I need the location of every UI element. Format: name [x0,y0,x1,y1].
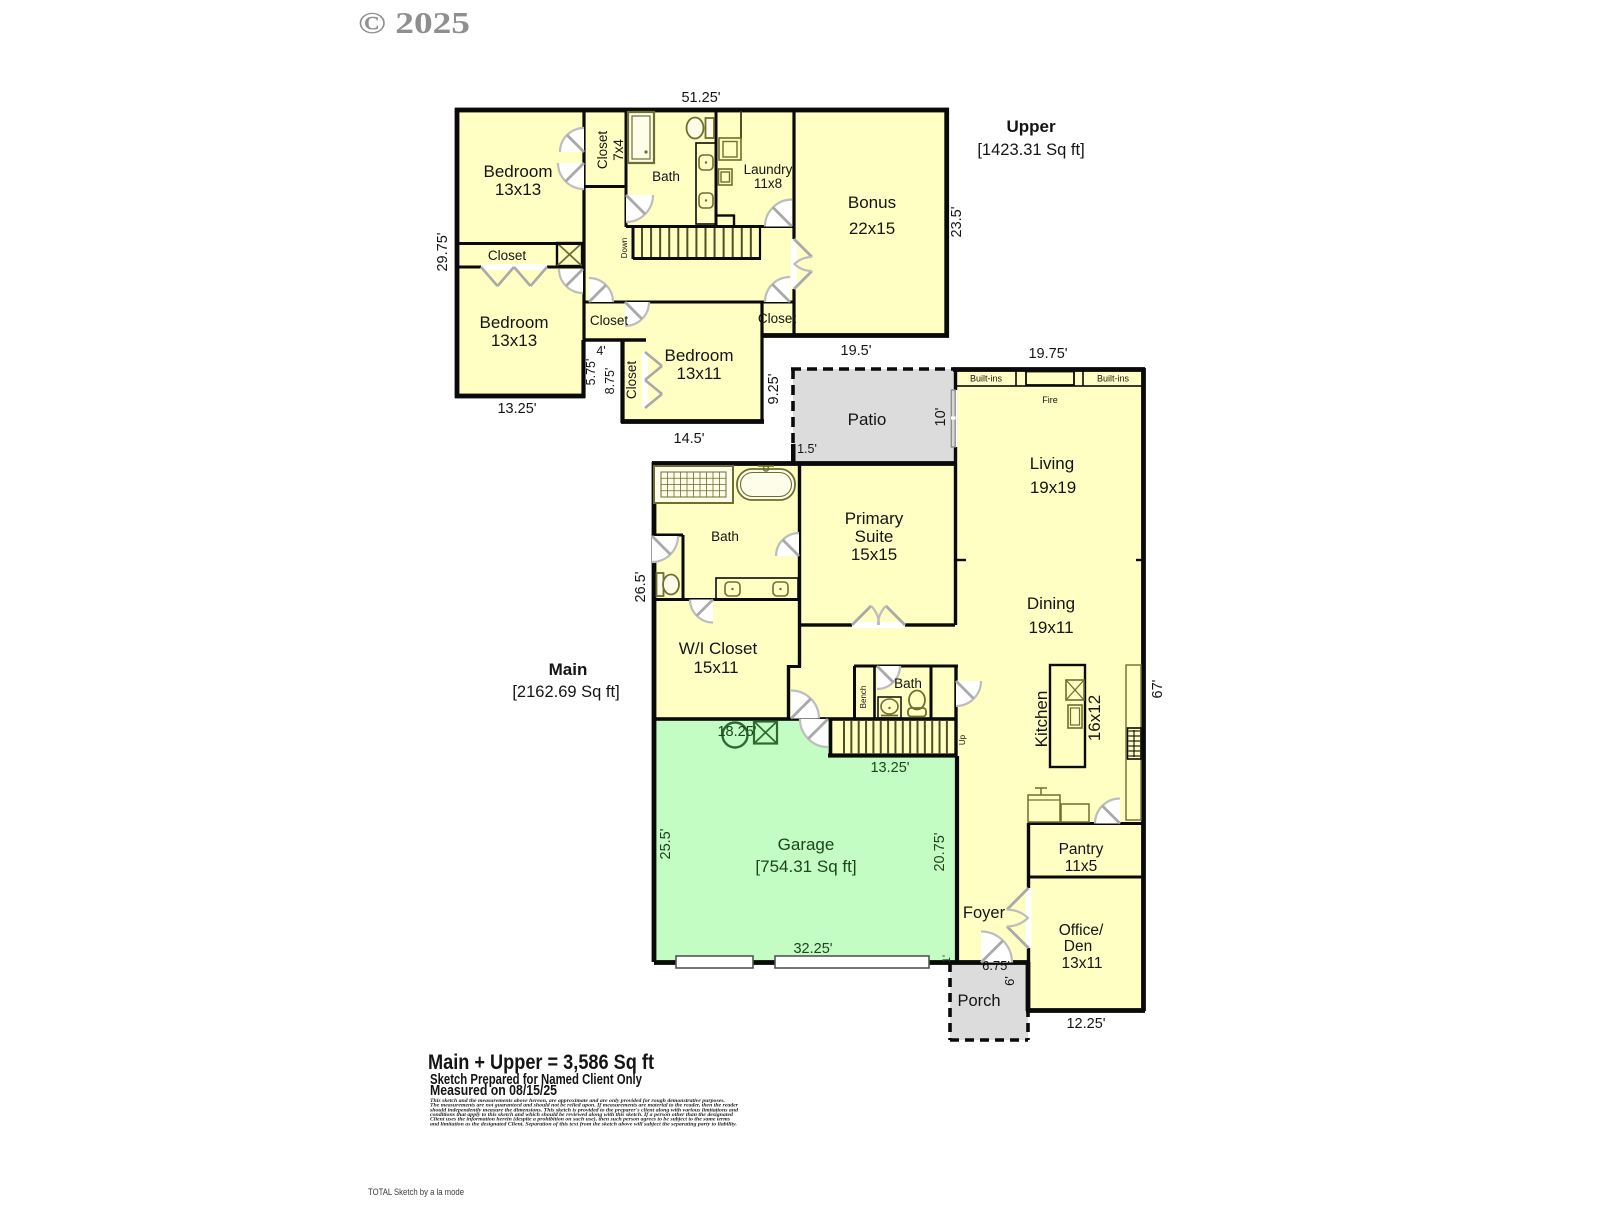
svg-text:1': 1' [941,955,953,963]
svg-text:13x13: 13x13 [495,180,541,199]
svg-text:13.25': 13.25' [497,401,536,417]
svg-text:[754.31 Sq ft]: [754.31 Sq ft] [755,857,856,876]
svg-text:Built-ins: Built-ins [1097,374,1130,384]
svg-text:Primary: Primary [845,509,904,528]
svg-text:Laundry: Laundry [744,162,793,177]
svg-text:Closet: Closet [595,131,610,170]
svg-text:13x11: 13x11 [676,364,721,383]
svg-text:67': 67' [1150,679,1166,698]
svg-text:Main: Main [549,660,588,679]
svg-text:16x12: 16x12 [1085,695,1104,741]
svg-text:Bath: Bath [711,529,739,544]
svg-text:11x5: 11x5 [1065,858,1097,875]
svg-text:Closet: Closet [624,361,639,400]
svg-text:Bedroom: Bedroom [480,313,549,332]
svg-text:22x15: 22x15 [849,219,895,238]
svg-text:Kitchen: Kitchen [1032,691,1051,748]
svg-text:TOTAL Sketch by a la mode: TOTAL Sketch by a la mode [368,1187,464,1197]
svg-text:Living: Living [1030,454,1074,473]
svg-text:Bath: Bath [652,169,680,184]
svg-text:Dining: Dining [1027,594,1075,613]
svg-text:Office/: Office/ [1059,922,1104,939]
svg-text:© 2025: © 2025 [358,5,470,40]
svg-text:Measured on 08/15/25: Measured on 08/15/25 [430,1083,557,1099]
svg-text:12.25': 12.25' [1066,1016,1105,1032]
svg-text:14.5': 14.5' [674,431,705,447]
svg-text:19x19: 19x19 [1030,478,1076,497]
svg-text:Porch: Porch [957,992,1000,1010]
svg-text:[2162.69 Sq ft]: [2162.69 Sq ft] [512,683,619,701]
svg-text:51.25': 51.25' [681,90,720,106]
svg-text:19.5': 19.5' [841,343,872,359]
svg-text:11x8: 11x8 [754,176,782,191]
svg-text:Closet: Closet [758,311,797,326]
svg-text:10': 10' [933,407,949,426]
svg-text:25.5': 25.5' [658,828,674,859]
svg-text:Bedroom: Bedroom [484,162,553,181]
svg-text:Bedroom: Bedroom [665,346,734,365]
svg-text:Bath: Bath [894,676,922,691]
svg-text:and limitation as the designat: and limitation as the designated Client.… [430,1122,737,1127]
svg-text:20.75': 20.75' [932,832,948,871]
svg-text:9.25': 9.25' [766,373,782,404]
svg-text:Upper: Upper [1006,117,1056,136]
svg-text:Main + Upper = 3,586 Sq ft: Main + Upper = 3,586 Sq ft [428,1050,654,1074]
svg-text:Fire: Fire [1042,395,1058,405]
svg-text:Bonus: Bonus [848,193,896,212]
svg-text:Up: Up [958,734,967,745]
svg-text:18.25': 18.25' [717,724,756,740]
svg-text:32.25': 32.25' [793,941,832,957]
svg-text:Foyer: Foyer [963,904,1006,922]
svg-text:19.75': 19.75' [1028,346,1067,362]
svg-text:13x11: 13x11 [1061,955,1102,972]
svg-text:[1423.31 Sq ft]: [1423.31 Sq ft] [977,141,1084,159]
svg-text:29.75': 29.75' [435,232,451,271]
svg-text:W/I Closet: W/I Closet [679,639,758,658]
svg-text:15x11: 15x11 [693,658,738,677]
svg-text:Den: Den [1064,938,1092,955]
svg-text:Closet: Closet [590,313,629,328]
svg-text:Down: Down [620,238,629,258]
svg-text:1.5': 1.5' [797,442,817,456]
svg-text:Built-ins: Built-ins [970,374,1003,384]
svg-text:Bench: Bench [859,686,868,709]
svg-text:13.25': 13.25' [870,760,909,776]
svg-text:Patio: Patio [848,410,887,429]
svg-text:8.75': 8.75' [603,368,617,395]
svg-text:23.5': 23.5' [949,206,965,237]
svg-text:6.75': 6.75' [982,958,1010,973]
svg-text:6': 6' [1002,976,1017,986]
svg-text:Garage: Garage [778,835,835,854]
svg-text:5.75': 5.75' [584,359,598,386]
svg-text:15x15: 15x15 [851,545,897,564]
svg-text:4': 4' [596,344,605,358]
svg-text:7x4: 7x4 [611,139,626,161]
svg-text:Suite: Suite [855,527,894,546]
svg-text:26.5': 26.5' [633,571,649,602]
svg-text:Closet: Closet [488,248,527,263]
svg-text:13x13: 13x13 [491,331,537,350]
svg-text:Pantry: Pantry [1059,841,1104,858]
svg-text:19x11: 19x11 [1028,618,1073,637]
